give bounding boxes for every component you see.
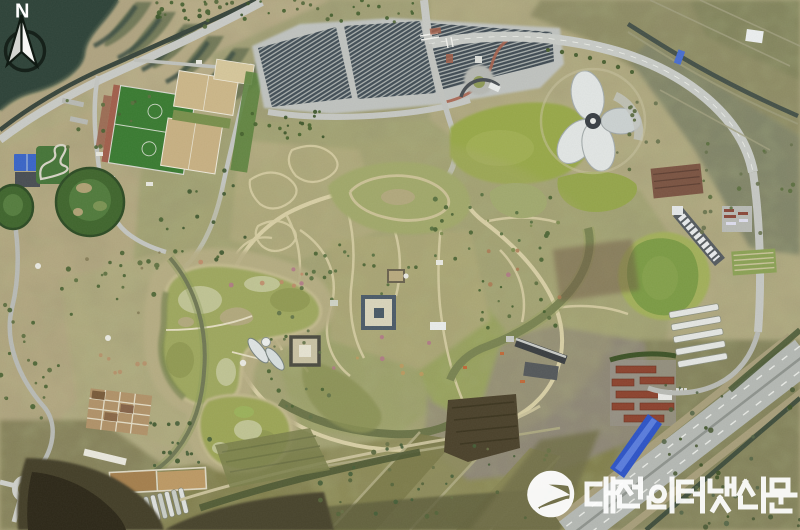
svg-text:N: N	[15, 1, 29, 23]
